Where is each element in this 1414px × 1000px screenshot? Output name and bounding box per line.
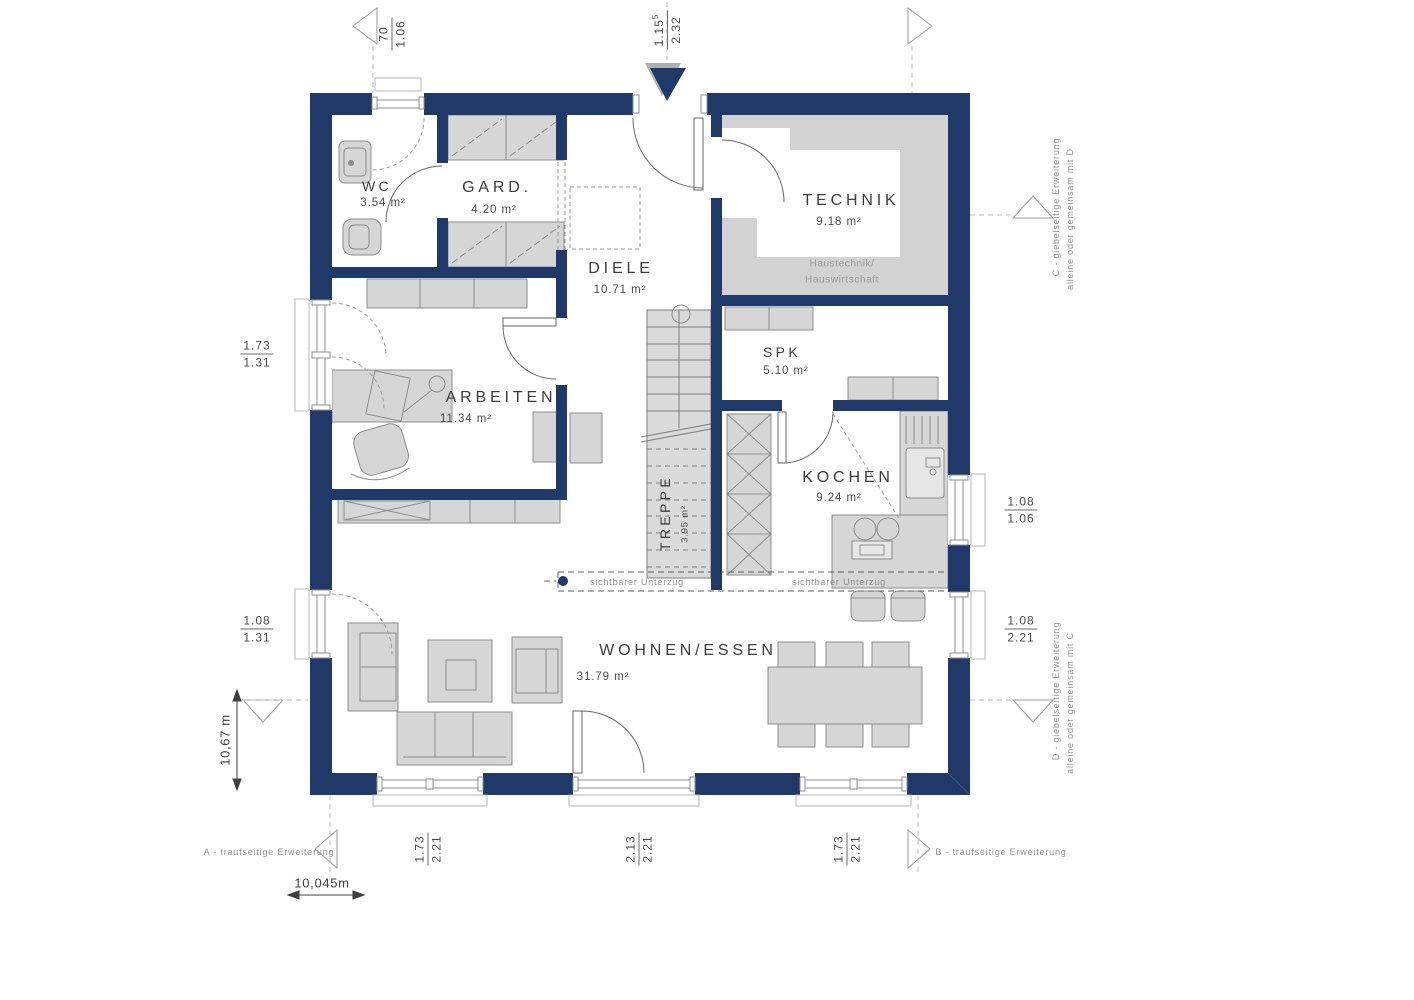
technik-note-line2: Hauswirtschaft xyxy=(805,275,879,286)
office-desk xyxy=(332,370,452,422)
window-bottom-center xyxy=(569,773,699,806)
arbeiten-door xyxy=(503,318,556,379)
overall-width-label: 10,045m xyxy=(294,876,349,891)
annotation-d-line1: D - giebelseitige Erweiterung xyxy=(1051,622,1061,761)
armchair-right xyxy=(512,637,562,703)
dim-top-left: 701.06 xyxy=(377,17,410,50)
room-label-diele: DIELE xyxy=(588,260,653,278)
dim-top-center: 1.1552.32 xyxy=(651,11,685,50)
dim-bottom-left: 1.732.21 xyxy=(413,832,446,865)
kitchen-tall-cabinets xyxy=(727,414,771,575)
floor-plan: WC 3.54 m² GARD. 4.20 m² DIELE 10.71 m² … xyxy=(0,0,1414,1000)
room-label-gard: GARD. xyxy=(462,179,532,197)
window-arbeiten xyxy=(295,299,332,411)
room-label-wohnen-essen: WOHNEN/ESSEN xyxy=(599,642,777,660)
office-shelf xyxy=(367,279,527,308)
spk-shelves xyxy=(725,307,938,400)
room-area-treppe: 3.95 m² xyxy=(680,505,691,543)
room-area-kochen: 9.24 m² xyxy=(816,492,861,504)
annotation-c-line1: C - giebelseitige Erweiterung xyxy=(1051,138,1061,277)
technik-note-line1: Haustechnik/ xyxy=(809,259,874,270)
window-kochen xyxy=(948,474,985,546)
room-area-gard: 4.20 m² xyxy=(471,204,516,216)
hall-cabinet xyxy=(570,413,602,463)
window-bottom-right xyxy=(796,773,911,806)
kitchen-counter-right xyxy=(900,411,948,515)
wc-door xyxy=(386,166,442,222)
room-area-diele: 10.71 m² xyxy=(594,284,647,296)
window-wohnen-left xyxy=(295,589,332,659)
room-area-spk: 5.10 m² xyxy=(763,365,808,377)
annotation-b: B - traufseitige Erweiterung xyxy=(935,847,1066,857)
room-area-wohnen-essen: 31.79 m² xyxy=(577,671,630,683)
entrance-door xyxy=(633,118,703,190)
room-area-wc: 3.54 m² xyxy=(360,197,405,209)
marker-top-right xyxy=(908,8,932,44)
annotation-c-line2: alleine oder gemeinsam mit D xyxy=(1065,148,1075,290)
sofa xyxy=(397,712,512,765)
window-wc xyxy=(372,78,424,115)
marker-left-lower xyxy=(243,700,283,722)
terrace-door xyxy=(573,711,644,773)
staircase xyxy=(641,305,716,578)
room-area-technik: 9.18 m² xyxy=(816,216,861,228)
room-label-spk: SPK xyxy=(763,344,801,360)
room-area-arbeiten: 11.34 m² xyxy=(440,413,492,425)
annotation-a: A - traufseitige Erweiterung xyxy=(204,847,335,857)
room-label-kochen: KOCHEN xyxy=(802,469,894,487)
gard-wardrobe-bottom xyxy=(448,222,564,267)
marker-right-lower xyxy=(1013,700,1053,722)
marker-bottom-right xyxy=(908,830,930,868)
kochen-door xyxy=(778,412,833,463)
entrance-opening xyxy=(633,93,707,115)
window-bottom-left xyxy=(373,773,487,806)
marker-top-left xyxy=(353,8,377,44)
bar-stools xyxy=(851,591,925,621)
dim-right-upper: 1.081.06 xyxy=(1004,495,1037,528)
sideboard xyxy=(338,498,560,523)
dim-left-upper: 1.731.31 xyxy=(240,339,273,372)
marker-right-upper xyxy=(1013,196,1053,218)
dining-set xyxy=(768,642,922,747)
beam-label-left: sichtbarer Unterzug xyxy=(590,577,684,587)
armchair-left xyxy=(348,623,398,711)
beam-dot xyxy=(558,576,568,586)
room-label-arbeiten: ARBEITEN xyxy=(446,389,557,407)
dim-bottom-right: 1.732.21 xyxy=(832,832,865,865)
wc-sink xyxy=(339,141,371,183)
gard-wardrobe-top xyxy=(448,115,564,160)
annotation-d-line2: alleine oder gemeinsam mit C xyxy=(1065,632,1075,774)
dim-right-lower: 1.082.21 xyxy=(1004,614,1037,647)
window-essen-right xyxy=(948,591,985,659)
room-label-treppe: TREPPE xyxy=(657,475,673,551)
beam-label-right: sichtbarer Unterzug xyxy=(792,577,886,587)
office-chair xyxy=(351,421,411,480)
room-label-wc: WC xyxy=(362,178,392,194)
dim-bottom-center: 2.132.21 xyxy=(624,832,657,865)
room-label-technik: TECHNIK xyxy=(802,192,899,210)
dim-left-lower: 1.081.31 xyxy=(240,614,273,647)
wc-toilet xyxy=(343,219,381,255)
overall-height-label: 10,67 m xyxy=(218,714,233,766)
coffee-table xyxy=(428,640,492,702)
